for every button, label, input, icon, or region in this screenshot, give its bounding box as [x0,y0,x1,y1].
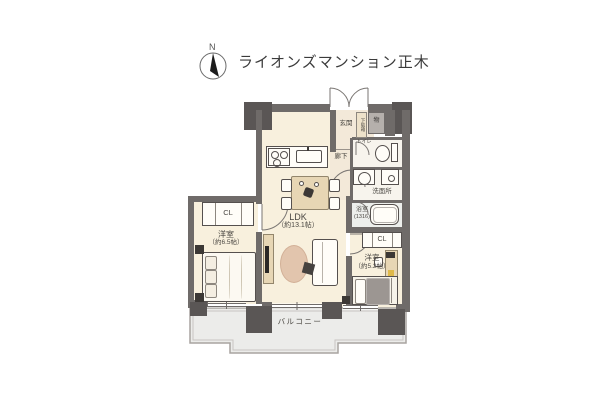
pillar-balcony-4 [378,309,405,335]
ldk-name: LDK [289,212,307,222]
burner-3 [273,159,281,167]
wall-left-lower [188,196,194,308]
bed-pillow-2 [205,270,217,284]
bedroom-right-sideunit [342,296,350,304]
bed-double [202,252,256,302]
bedroom-right-size: （約5.2帖） [344,263,400,270]
bedroom-left-label: 洋室 （約6.5帖） [196,230,256,247]
storage-label: 物 [368,118,385,125]
bedroom-left-size: （約6.5帖） [196,239,256,246]
dining-chair-1 [281,179,292,192]
bed-single-footline [391,278,392,303]
bed-single-blanket [366,278,390,305]
shoe-cabinet-label: 下駄箱 [357,113,366,137]
washer-pan [381,169,399,185]
bathtub [370,204,399,225]
bathtub-inner [373,207,397,223]
balcony-label: バルコニー [268,318,332,327]
entrance-door-left-arc [330,88,349,107]
sofa [312,239,338,286]
washstand [353,169,375,185]
entrance-door-right-arc [349,88,368,107]
kitchen-sink [296,150,322,163]
bed-blanket-fold-1 [229,255,230,299]
ldk-label: LDK （約13.1帖） [266,212,330,230]
bed-blanket-fold-2 [241,255,242,299]
balcony-outline [190,308,406,353]
toilet-label: トイレ [353,140,375,146]
washer-drain [388,175,395,182]
pillar-balcony-3 [322,302,342,319]
closet-right-label: CL [362,236,402,244]
wall-ldk-genkan [330,110,336,152]
bedroom-left-name: 洋室 [218,230,234,239]
tv [265,246,269,273]
floor-plan-page: N ライオンズマンション正木 [0,0,600,400]
toilet-bowl [375,145,390,162]
wall-right [402,110,410,312]
wall-bedrooms-divider [256,232,262,304]
dining-chair-3 [329,179,340,192]
bathroom-name: 浴室 [356,207,368,213]
pillar-balcony-1 [190,302,207,316]
nightstand-bottom [195,293,204,302]
dining-cup-1 [299,181,304,186]
entrance-label: 玄関 [334,120,358,127]
bedroom-right-name: 洋室 [365,253,380,262]
kitchen-faucet [307,147,309,151]
dining-chair-4 [329,197,340,210]
sofa-cushion-line [322,242,323,283]
dining-chair-2 [281,197,292,210]
hallway-label: 廊下 [328,153,354,160]
bathroom-label: 浴室 (1316) [350,207,374,220]
washroom-label: 洗面所 [362,188,402,195]
ldk-size: （約13.1帖） [266,222,330,230]
dining-cup-2 [314,182,319,187]
bed-single-pillow [355,279,366,304]
bed-pillow-3 [205,284,217,298]
bed-pillow-1 [205,256,217,270]
wall-storage-right [385,110,395,136]
stove [268,148,290,166]
burner-2 [280,151,288,159]
toilet-tank [391,143,398,162]
washbasin [358,172,371,185]
burner-1 [271,151,279,159]
wall-wash-bath [352,200,402,203]
closet-left-label: CL [202,209,254,218]
bathroom-size: (1316) [350,214,374,220]
bed-single [352,276,398,305]
bedroom-right-label: 洋室 （約5.2帖） [344,254,400,270]
wall-ldk-left-upper [256,110,262,204]
